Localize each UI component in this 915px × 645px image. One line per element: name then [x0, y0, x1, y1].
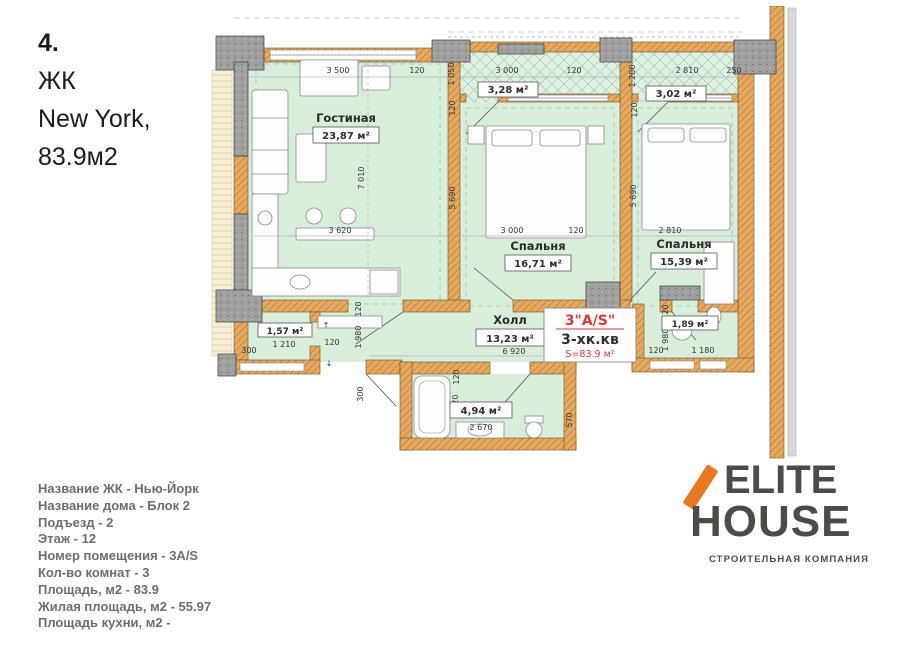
dim-label: 570 — [565, 412, 574, 427]
nightstand — [588, 126, 604, 144]
logo-subtitle: СТРОИТЕЛЬНАЯ КОМПАНИЯ — [698, 554, 880, 565]
room-area-hall: 13,23 м² — [486, 334, 534, 345]
dim-label: 250 — [726, 66, 741, 75]
room-name-bedroom1: Спальня — [510, 239, 565, 253]
dim-label: 1 180 — [692, 346, 715, 355]
elite-house-logo: ELITE HOUSE СТРОИТЕЛЬНАЯ КОМПАНИЯ — [668, 458, 880, 576]
logo-house: HOUSE — [690, 500, 851, 544]
dim-label: 1 980 — [354, 326, 363, 349]
info-line: Площадь, м2 - 83.9 — [38, 582, 211, 599]
info-line: Кол-во комнат - 3 — [38, 565, 211, 582]
dim-label: 1 200 — [628, 65, 637, 88]
room-name-living: Гостиная — [316, 111, 376, 125]
nightstand — [468, 126, 484, 144]
title-line-area: 83.9м2 — [38, 138, 151, 176]
info-line: Название ЖК - Нью-Йорк — [38, 481, 211, 498]
dim-label: 300 — [356, 386, 365, 401]
dim-label: 7 010 — [357, 167, 366, 190]
title-line-zk: ЖК — [38, 62, 151, 100]
dim-label: 120 — [354, 301, 363, 316]
room-area-balcony1: 3,28 м² — [488, 85, 529, 96]
info-line: Название дома - Блок 2 — [38, 498, 211, 515]
dim-label: 6 920 — [503, 347, 526, 356]
room-area-bathroom: 4,94 м² — [461, 406, 502, 417]
apartment-info: Название ЖК - Нью-Йорк Название дома - Б… — [38, 481, 211, 632]
info-line: Подъезд - 2 — [38, 515, 211, 532]
room-area-bedroom2: 15,39 м² — [660, 257, 708, 268]
apartment-label: 3"A/S" 3-хк.кв S=83.9 м² — [544, 308, 636, 362]
floor-plan: 3 500 120 3 000 120 2 810 250 1 050 120 … — [198, 6, 810, 468]
info-line: Этаж - 12 — [38, 531, 211, 548]
dim-label: 3 000 — [496, 66, 519, 75]
pillow — [540, 130, 580, 146]
apartment-area: S=83.9 м² — [565, 349, 614, 360]
room-name-bedroom2: Спальня — [656, 237, 711, 251]
level-arrow-up: ↑ — [323, 321, 330, 330]
dim-label: 5 690 — [629, 185, 638, 208]
dim-label: 2 670 — [470, 423, 493, 432]
sofa — [252, 90, 288, 194]
dim-label: 120 — [409, 66, 424, 75]
room-area-living: 23,87 м² — [322, 131, 370, 142]
wardrobe — [704, 242, 734, 304]
info-line: Площадь кухни, м2 - — [38, 615, 211, 632]
kitchen-sink — [258, 211, 272, 225]
stool — [340, 208, 356, 224]
dim-label: 3 000 — [501, 226, 524, 235]
pillow — [492, 130, 532, 146]
fridge — [370, 270, 398, 294]
pillow — [690, 128, 726, 142]
room-area-bedroom1: 16,71 м² — [514, 259, 562, 270]
room-name-hall: Холл — [493, 313, 527, 327]
dim-label: 120 — [648, 346, 663, 355]
room-area-balcony2: 3,02 м² — [656, 89, 697, 100]
info-line: Жилая площадь, м2 - 55.97 — [38, 599, 211, 616]
room-area-storage: 1,57 м² — [267, 327, 304, 337]
dim-label: 1 210 — [273, 340, 296, 349]
dim-label: 120 — [324, 338, 339, 347]
room-area-wc: 1,89 м² — [672, 320, 709, 330]
dim-label: 5 690 — [448, 187, 457, 210]
apartment-kind: 3-хк.кв — [561, 332, 619, 348]
dim-label: 2 810 — [659, 226, 682, 235]
logo-elite: ELITE — [724, 460, 837, 500]
dim-label: 1 050 — [447, 63, 456, 86]
stool — [306, 208, 322, 224]
info-line: Номер помещения - 3A/S — [38, 548, 211, 565]
apartment-type: 3"A/S" — [565, 313, 615, 329]
title-line-name: New York, — [38, 100, 151, 138]
dim-label: 300 — [241, 346, 256, 355]
plan-number: 4. — [38, 24, 151, 62]
dim-label: 120 — [566, 66, 581, 75]
dim-label: 3 500 — [327, 66, 350, 75]
page-title: 4. ЖК New York, 83.9м2 — [38, 24, 151, 176]
sink — [290, 275, 310, 289]
level-arrow-down: ↓ — [326, 359, 333, 368]
dim-label: 120 — [448, 100, 457, 115]
dim-label: 120 — [630, 102, 639, 117]
dim-label: 120 — [452, 369, 461, 384]
pillow — [648, 128, 684, 142]
dim-label: 3 620 — [329, 226, 352, 235]
side-table — [362, 66, 390, 90]
toilet — [526, 422, 542, 438]
dim-label: 120 — [568, 226, 583, 235]
dim-label: 2 810 — [676, 66, 699, 75]
